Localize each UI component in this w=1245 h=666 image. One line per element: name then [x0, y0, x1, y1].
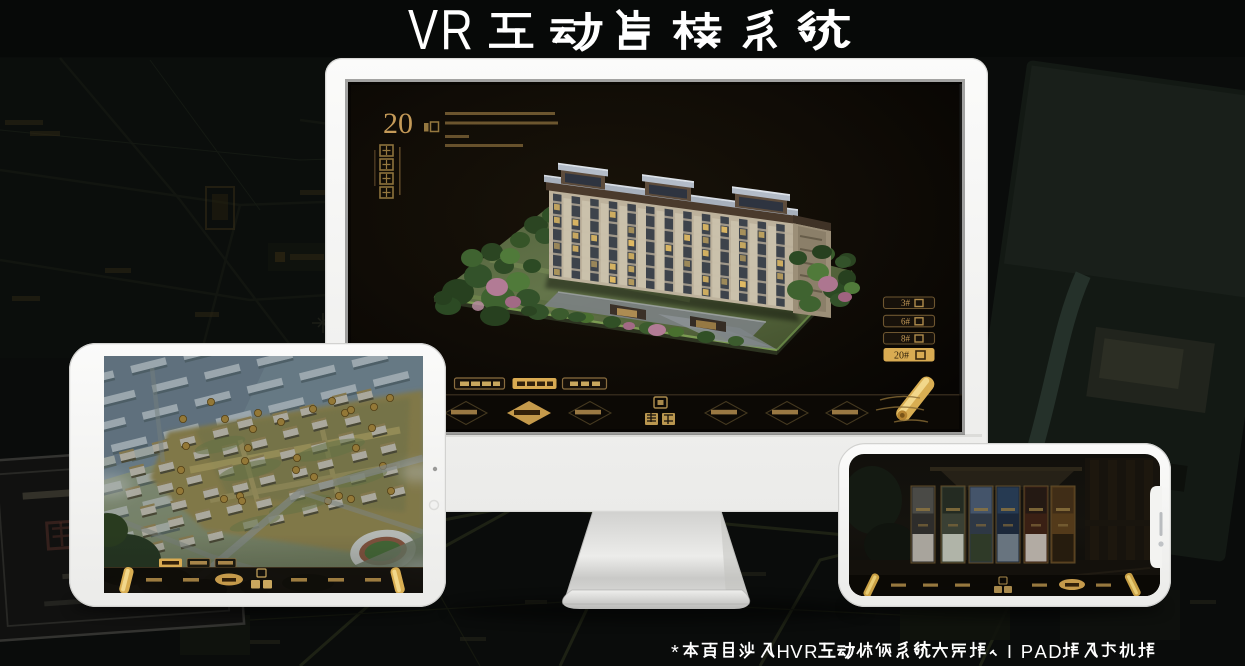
svg-text:8#: 8#: [901, 334, 911, 344]
svg-text:20: 20: [383, 107, 413, 140]
svg-text:3#: 3#: [901, 298, 911, 308]
svg-text:V: V: [790, 641, 803, 662]
svg-text:D: D: [1048, 641, 1061, 662]
svg-text:R: R: [804, 641, 817, 662]
svg-text:*: *: [671, 642, 679, 664]
svg-text:VR: VR: [408, 0, 475, 61]
svg-text:6#: 6#: [901, 316, 911, 326]
svg-text:A: A: [1035, 641, 1048, 662]
svg-text:20#: 20#: [894, 351, 909, 362]
svg-text:P: P: [1021, 641, 1033, 662]
svg-text:H: H: [777, 641, 790, 662]
svg-text:I: I: [1007, 641, 1012, 662]
